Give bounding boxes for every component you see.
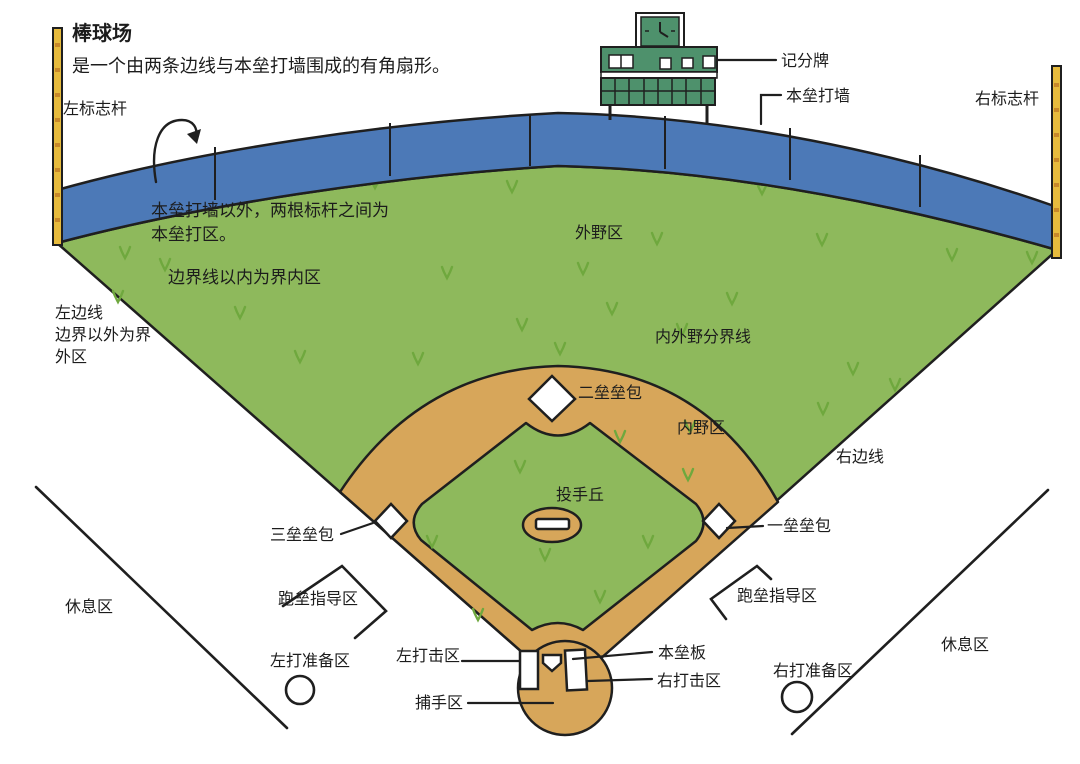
label-batter-right: 右打击区 [657,671,721,690]
label-left-line: 左边线 [55,303,103,322]
connector-wall [761,95,781,124]
label-right-pole: 右标志杆 [975,89,1039,108]
label-scoreboard: 记分牌 [781,51,829,70]
label-homerun-note-1: 本垒打墙以外，两根标杆之间为 [151,201,389,221]
label-right-line: 右边线 [836,447,884,466]
label-first-base: 一垒垒包 [767,516,831,535]
label-ondeck-right: 右打准备区 [773,661,853,680]
left-foul-pole [53,28,62,245]
scoreboard-clock [636,13,684,49]
label-coach-box-right: 跑垒指导区 [737,586,817,605]
label-ondeck-left: 左打准备区 [270,651,350,670]
label-homerun-note-2: 本垒打区。 [151,225,236,245]
label-foul-note-2: 外区 [55,347,87,366]
label-pitcher-mound: 投手丘 [556,485,604,504]
label-outfield: 外野区 [575,223,623,242]
baseball-field-diagram: 棒球场 是一个由两条边线与本垒打墙围成的有角扇形。 左标志杆 右标志杆 记分牌 … [0,0,1080,764]
label-foul-note-1: 边界以外为界 [55,325,151,344]
label-dugout-right: 休息区 [941,635,989,654]
batter-box-right [565,650,587,691]
page-title: 棒球场 [72,21,132,45]
label-dugout-left: 休息区 [65,597,113,616]
on-deck-circle-left [286,676,314,704]
label-catcher: 捕手区 [415,693,463,712]
scoreboard [601,13,717,123]
label-left-pole: 左标志杆 [63,99,127,118]
label-infield: 内野区 [677,418,725,437]
label-wall: 本垒打墙 [786,86,850,105]
label-third-base: 三垒垒包 [270,525,334,544]
connector-third-base [341,523,373,534]
label-io-boundary: 内外野分界线 [655,327,751,346]
label-coach-box-left: 跑垒指导区 [278,589,358,608]
label-fair-note: 边界线以内为界内区 [168,268,321,288]
label-home-plate: 本垒板 [658,643,706,662]
pitcher-plate [536,519,569,529]
batter-box-left [520,651,538,689]
label-batter-left: 左打击区 [396,646,460,665]
diagram-canvas: 棒球场 是一个由两条边线与本垒打墙围成的有角扇形。 左标志杆 右标志杆 记分牌 … [0,0,1080,764]
right-foul-pole [1052,66,1061,258]
label-second-base: 二垒垒包 [578,383,642,402]
homerun-arrowhead [187,129,201,144]
page-subtitle: 是一个由两条边线与本垒打墙围成的有角扇形。 [72,56,450,77]
on-deck-circle-right [782,682,812,712]
